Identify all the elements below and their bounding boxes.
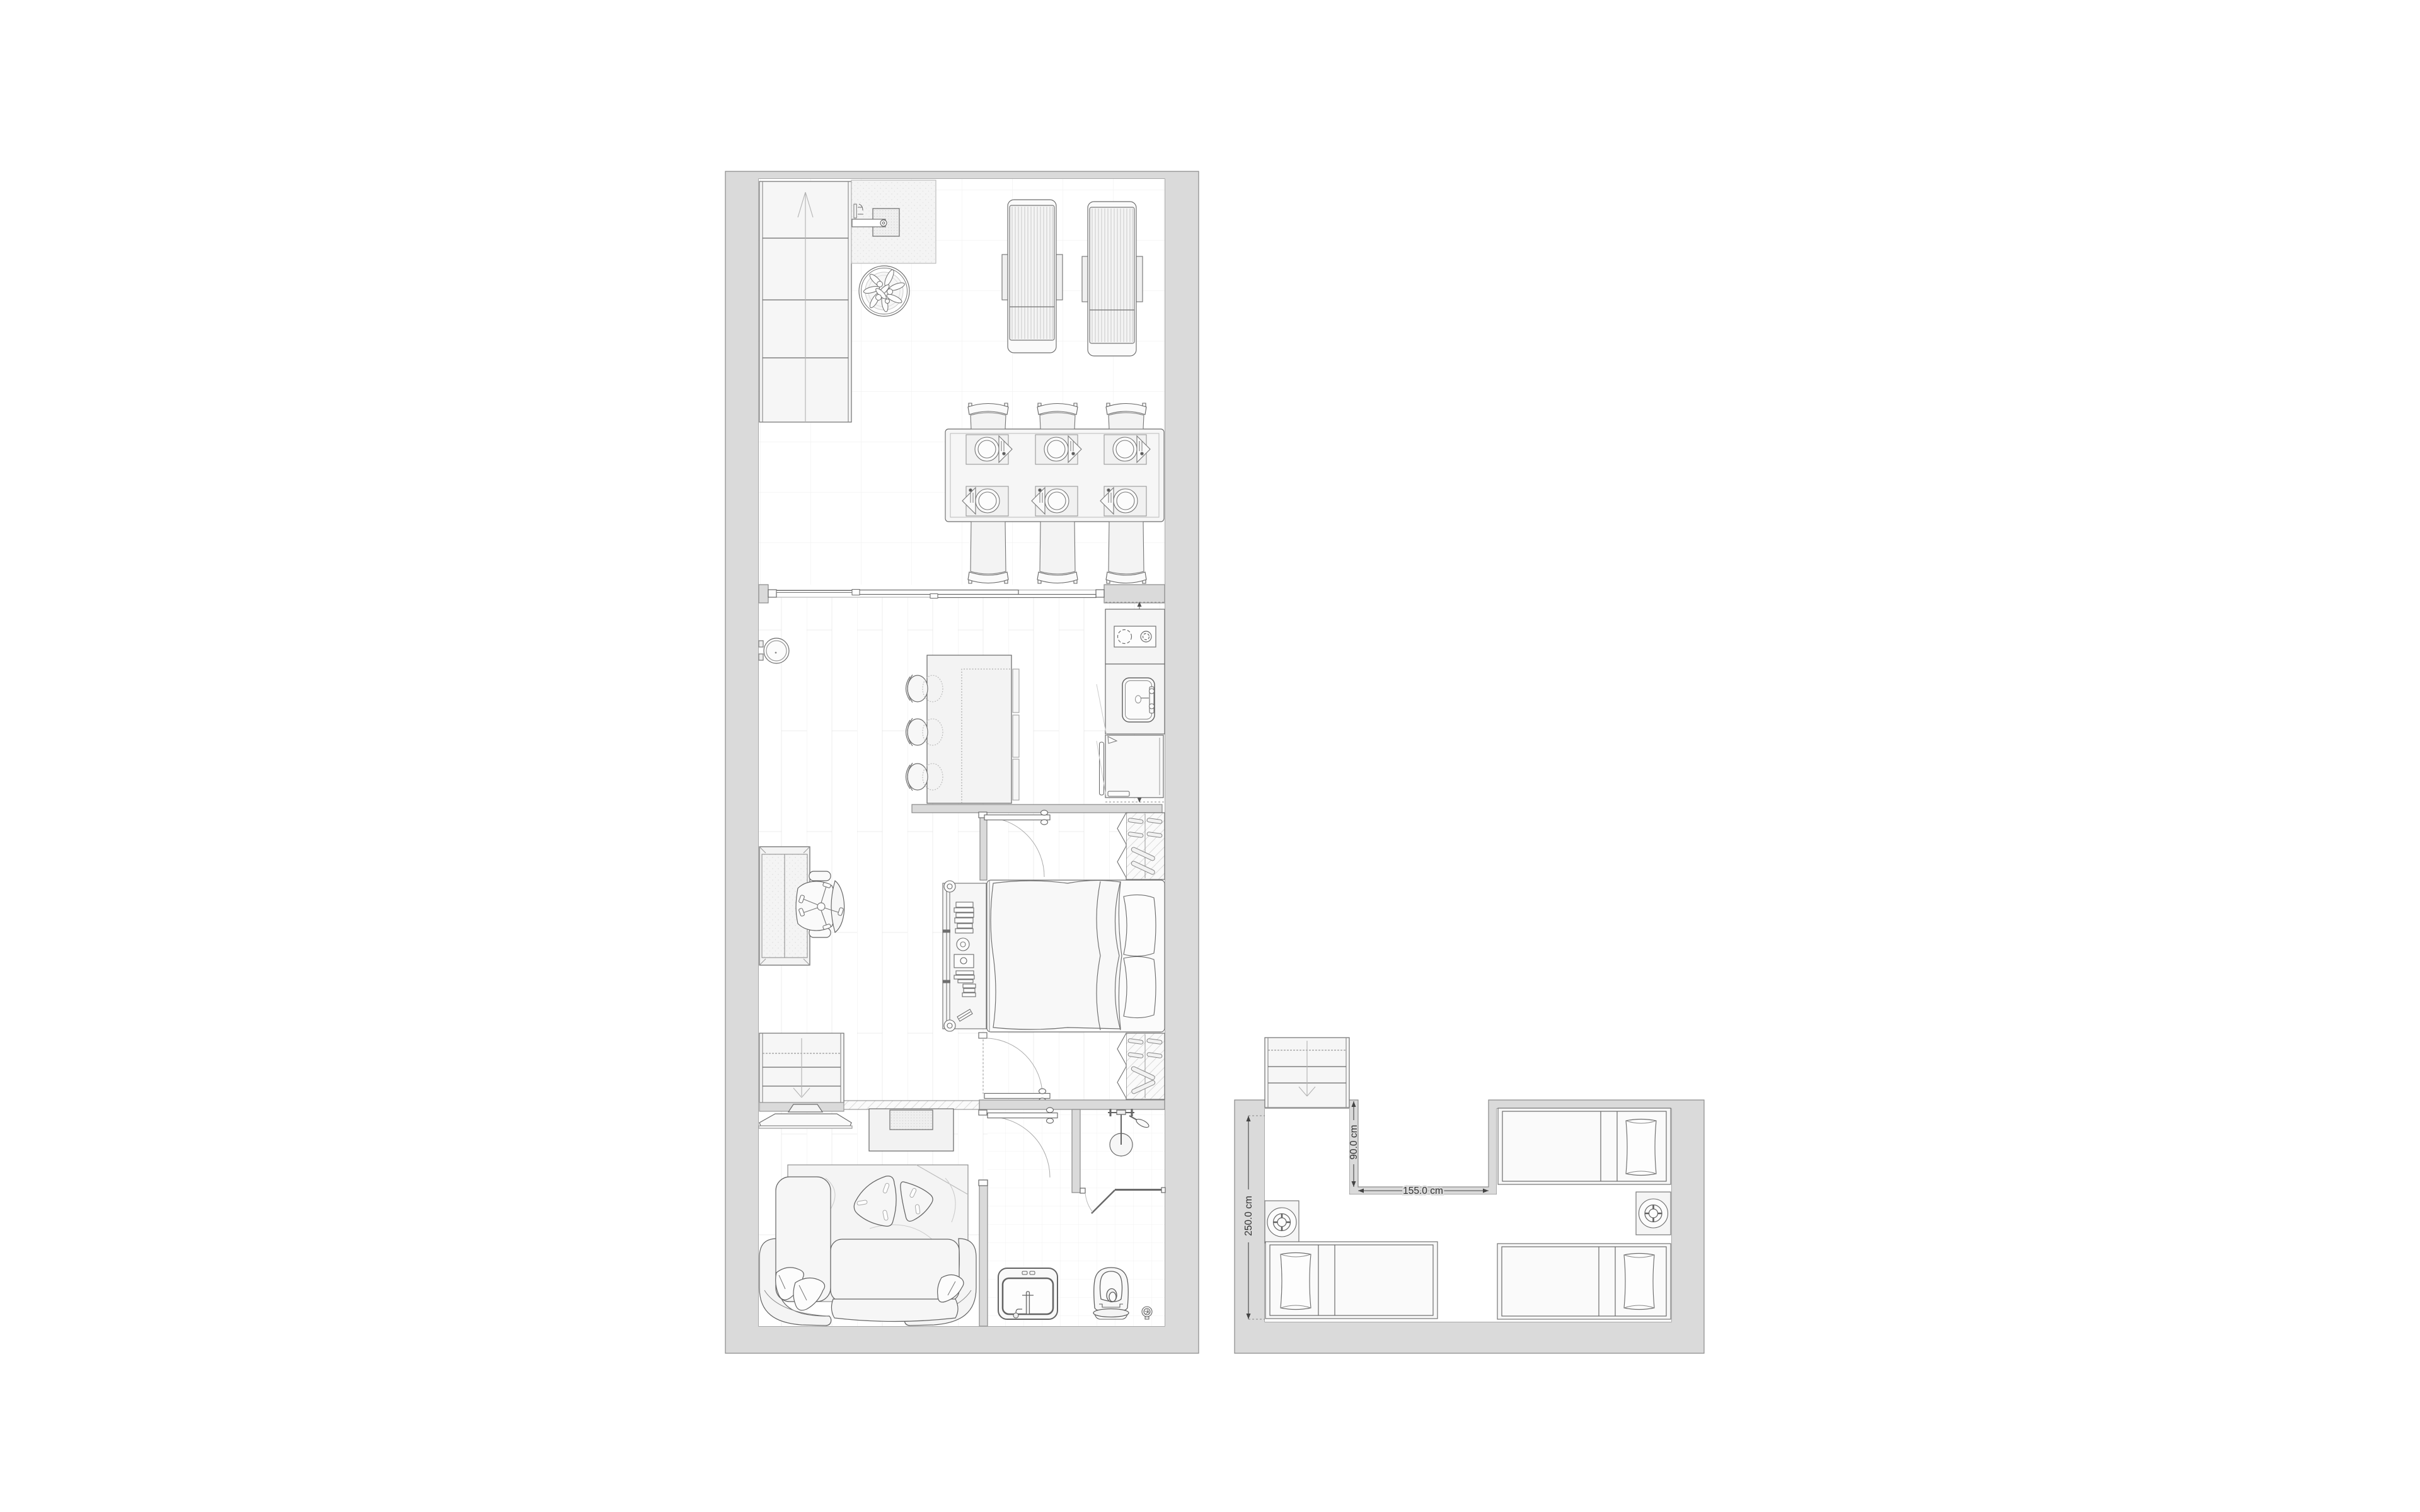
svg-text:155.0 cm: 155.0 cm xyxy=(1403,1186,1443,1196)
svg-text:250.0 cm: 250.0 cm xyxy=(1243,1196,1254,1236)
svg-text:90.0 cm: 90.0 cm xyxy=(1349,1125,1359,1159)
